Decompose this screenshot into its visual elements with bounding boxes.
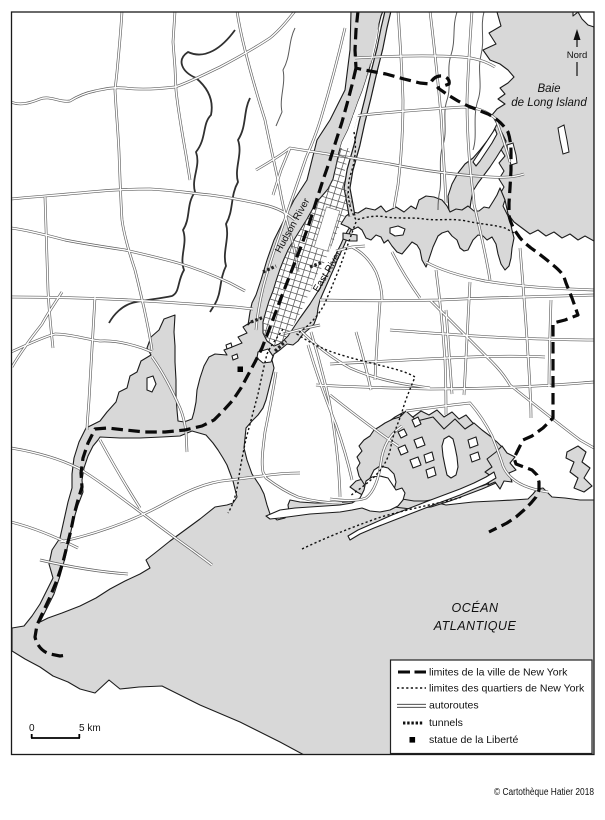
svg-text:OCÉAN: OCÉAN	[452, 600, 499, 615]
svg-text:tunnels: tunnels	[429, 717, 463, 729]
svg-text:© Cartothèque Hatier 2018: © Cartothèque Hatier 2018	[494, 787, 594, 798]
svg-text:5 km: 5 km	[79, 723, 101, 734]
svg-text:statue de la Liberté: statue de la Liberté	[429, 734, 518, 746]
svg-text:de Long Island: de Long Island	[511, 97, 587, 109]
svg-text:autoroutes: autoroutes	[429, 700, 479, 712]
svg-text:ATLANTIQUE: ATLANTIQUE	[433, 619, 517, 633]
svg-text:limites de la ville de New Yor: limites de la ville de New York	[429, 667, 568, 679]
svg-text:Baie: Baie	[537, 83, 560, 95]
svg-text:limites des quartiers de New Y: limites des quartiers de New York	[429, 683, 585, 695]
svg-text:0: 0	[29, 723, 35, 734]
svg-text:Nord: Nord	[567, 50, 588, 61]
